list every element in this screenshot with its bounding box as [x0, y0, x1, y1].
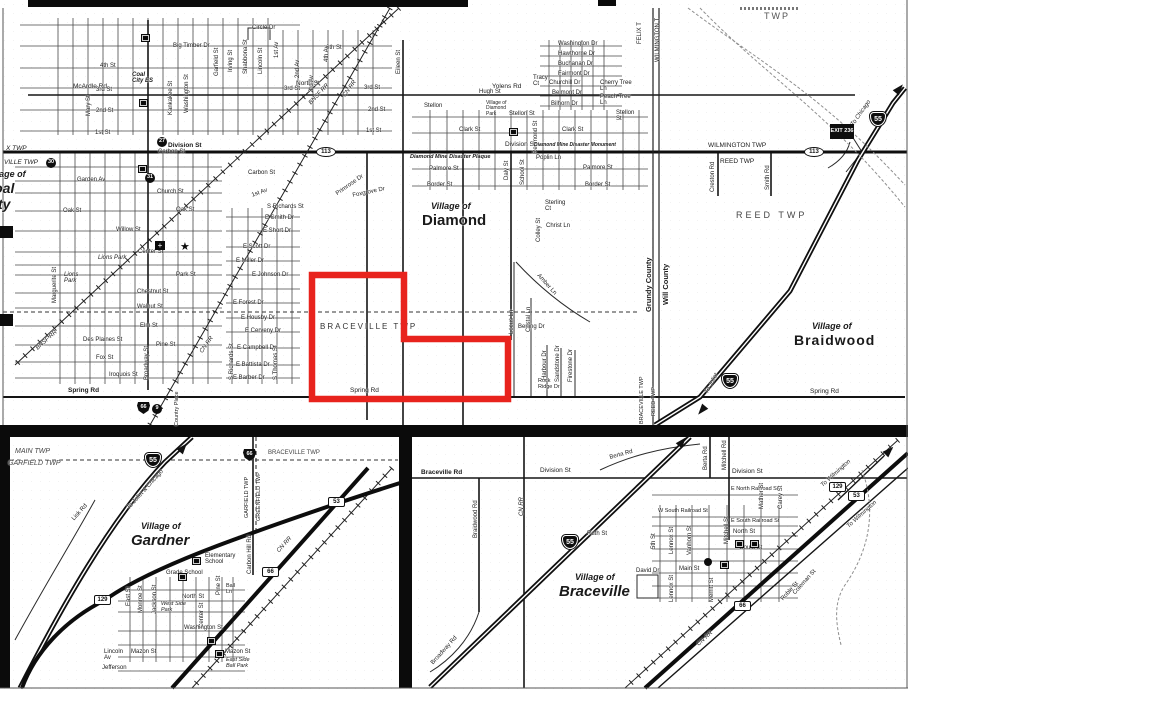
- map-label: McArdle Rd: [73, 84, 107, 91]
- school-icon: [215, 650, 224, 658]
- map-label: City: [0, 197, 10, 212]
- map-label: Poplin Ln: [536, 155, 561, 161]
- map-label: Fairmont Dr: [558, 71, 590, 77]
- map-label: Center St: [199, 603, 205, 628]
- map-label: Lions Park: [98, 255, 126, 261]
- map-label: W South Railroad St: [658, 509, 708, 515]
- village-label-diamond: Village of: [431, 202, 471, 211]
- arrow-north-icon: [883, 444, 896, 457]
- map-label: Braceville: [559, 584, 630, 600]
- map-label: 1st St: [366, 128, 381, 134]
- map-label: Stellon St: [509, 111, 535, 117]
- interstate-55-road: [20, 88, 905, 688]
- map-label: Eileen St: [396, 50, 402, 74]
- map-label: VILLE TWP: [4, 160, 38, 167]
- map-label: To Joliet: [704, 372, 720, 394]
- map-label: Daly St: [504, 161, 510, 180]
- map-label: Division St: [540, 468, 571, 475]
- map-label: E Barber Dr: [233, 375, 265, 381]
- route-marker-27: 27: [157, 137, 167, 147]
- map-label: Elementary School: [205, 553, 239, 566]
- route-113-shield: 113: [316, 147, 336, 157]
- map-label: S Richards St: [267, 204, 304, 210]
- map-label: X TWP: [6, 146, 27, 153]
- map-label: Redmond St: [533, 121, 539, 154]
- map-label: Carbon St: [248, 170, 275, 176]
- map-label: Mather St: [759, 483, 765, 509]
- map-label: Stellon: [424, 103, 442, 109]
- street-grid: [15, 18, 798, 671]
- map-label: Lennox St: [669, 527, 675, 554]
- map-label: Oak St: [176, 207, 194, 213]
- map-label: Village of Diamond Park: [486, 101, 514, 117]
- route-53-shield: 53: [328, 497, 345, 507]
- map-label: Creston Rd: [710, 162, 716, 192]
- route-marker-9: 9: [152, 404, 162, 414]
- map-label: Primrose Dr: [335, 174, 365, 198]
- map-label: Foxgrove Dr: [352, 186, 386, 199]
- school-icon: [178, 573, 187, 581]
- map-label: Big Timber Dr: [173, 43, 210, 49]
- map-label: Garfield St: [214, 48, 220, 76]
- map-label: Spring Rd: [810, 389, 839, 396]
- route-66-road: [22, 453, 908, 688]
- map-label: School St: [520, 159, 526, 185]
- map-label: Shabbona St: [243, 39, 249, 74]
- highlight-overlay-layer: [0, 0, 908, 690]
- map-label: REED TWP: [652, 387, 658, 416]
- map-label: Palmore St: [583, 165, 613, 171]
- map-label: Tracy Ct: [533, 75, 551, 88]
- map-label: 1st St: [95, 130, 110, 136]
- village-label-braidwood: Village of: [812, 322, 852, 331]
- map-label: E South Railroad St: [731, 519, 779, 525]
- map-label: CN RR: [696, 630, 714, 647]
- map-label: Carey St: [778, 486, 784, 509]
- map-label: Churchill Dr: [549, 80, 580, 86]
- interstate-55-shield: 55: [722, 374, 738, 388]
- map-label: GARFIELD TWP: [245, 477, 251, 518]
- map-label: Berta Rd: [703, 446, 709, 470]
- map-label: Church St: [157, 189, 184, 195]
- map-label: Park St: [176, 272, 196, 278]
- map-label: Peach Tree Ln: [600, 94, 632, 107]
- map-label: Lions Park: [64, 272, 86, 285]
- building-icon: [0, 226, 13, 238]
- map-label: WILMINGTON TWP: [708, 143, 766, 150]
- map-label: Coleman St: [792, 569, 818, 597]
- route-129-shield: 129: [94, 595, 111, 605]
- map-label: E Short Dr: [263, 228, 291, 234]
- map-label: Country Place: [175, 391, 181, 426]
- map-label: Yolens Rd: [492, 84, 521, 91]
- village-label-braceville: Village of: [575, 573, 615, 582]
- map-label: Coal City ES: [132, 72, 156, 85]
- map-label: Carbon St: [158, 149, 185, 155]
- historic-66-marker: 66: [137, 402, 150, 414]
- route-129-shield: 129: [829, 482, 846, 492]
- interstate-55-centerline: [20, 88, 905, 688]
- map-label: 3rd St: [284, 86, 300, 92]
- map-label: Kankakee St: [168, 81, 174, 115]
- arrow-north-icon: [177, 441, 190, 455]
- map-label: Washington St: [184, 74, 190, 113]
- map-label: East St: [126, 587, 132, 606]
- map-label: Main St: [679, 566, 699, 572]
- map-label: E Battista Dr: [236, 362, 270, 368]
- map-label: Broadway St: [144, 346, 150, 380]
- school-icon: [192, 557, 201, 565]
- map-label: Division St: [505, 142, 536, 149]
- map-label: Braidwood: [794, 333, 875, 348]
- map-label: To Joliet & Chicago: [126, 469, 165, 511]
- map-label: 2nd St: [368, 107, 385, 113]
- map-label: FELIX T: [637, 22, 643, 44]
- map-label: Monroe St: [138, 585, 144, 613]
- map-label: WILMINGTON T: [655, 18, 661, 62]
- railroad-ticks: [15, 8, 898, 688]
- map-label: Broadway Rd: [430, 635, 459, 666]
- historic-66-marker: 66: [243, 449, 256, 461]
- map-label: 2nd Av: [295, 60, 301, 78]
- map-label: Bilhorn Dr: [551, 101, 578, 107]
- map-label: Buchanan Dr: [558, 61, 593, 67]
- map-label: Division St: [168, 143, 202, 150]
- hospital-icon: [155, 241, 165, 250]
- direction-arrows: [177, 82, 906, 458]
- school-icon: [735, 540, 744, 548]
- map-label: Washington Dr: [558, 41, 597, 47]
- map-label: Harbour Dr: [542, 350, 548, 380]
- map-label: Mitchell St: [724, 516, 730, 544]
- map-label: Sandstone Dr: [555, 345, 561, 382]
- map-label: North St: [296, 81, 320, 88]
- arrow-south-icon: [695, 404, 708, 418]
- map-label: BNSF RR: [308, 83, 330, 106]
- map-label: E Scott Dr: [243, 244, 270, 250]
- map-label: E Cerveny Dr: [245, 328, 281, 334]
- map-label: Rock Ridge Dr: [538, 379, 566, 391]
- map-label: Lincoln St: [258, 48, 264, 74]
- illegible-text: [740, 7, 798, 10]
- map-label: 1st Av: [274, 42, 280, 58]
- map-label: East Side Ball Park: [226, 658, 258, 670]
- village-label-gardner: Village of: [141, 522, 181, 531]
- map-label: Division St: [732, 469, 763, 476]
- map-label: Iroquois St: [109, 372, 138, 378]
- map-label: BRACEVILLE TWP: [268, 450, 320, 456]
- map-label: 6th St: [326, 45, 342, 51]
- map-label: Coal: [0, 181, 14, 196]
- map-label: Center St: [138, 249, 163, 255]
- map-label: Braidwood Rd: [473, 500, 479, 538]
- school-icon: [139, 99, 148, 107]
- map-label: Mitchell Rd: [722, 440, 728, 470]
- map-label: E Johnson Dr: [252, 272, 288, 278]
- map-label: Des Plaines St: [83, 337, 122, 343]
- map-base-layer: [0, 0, 908, 690]
- creek-line: [688, 8, 905, 645]
- map-label: Berling Dr: [518, 324, 545, 330]
- major-roads: [28, 20, 907, 688]
- map-area: McArdle RdCircle DrNorth StYolens RdTWP4…: [0, 0, 908, 690]
- map-label: S Richards St: [229, 343, 235, 380]
- map-label: Marguerite St: [52, 267, 58, 303]
- map-label: 4th St: [100, 63, 116, 69]
- map-label: Mary St: [86, 95, 92, 116]
- map-label: North St: [733, 529, 755, 535]
- map-label: Walnut St: [137, 304, 163, 310]
- map-label: Willow St: [116, 227, 141, 233]
- map-label: Chestnut St: [137, 289, 168, 295]
- map-label: David Dr: [636, 568, 659, 574]
- map-label: TWP: [764, 12, 790, 21]
- map-label: Jackson St: [152, 585, 158, 614]
- map-label: North St: [182, 594, 204, 600]
- exit-236-sign: EXIT 236: [830, 124, 854, 139]
- map-label: Will County: [662, 264, 670, 305]
- map-label: Merritt St: [709, 578, 715, 602]
- map-label: Roble St: [780, 581, 800, 602]
- map-label: E Smith Dr: [265, 215, 294, 221]
- map-label: Border St: [585, 182, 610, 188]
- map-label: Smith Rd: [765, 165, 771, 190]
- star-icon: [180, 242, 190, 253]
- map-label: Diamond Mine Disaster Monument: [534, 143, 616, 148]
- map-label: MAIN TWP: [15, 448, 50, 455]
- map-label: Carbon Hill Rd: [247, 535, 253, 574]
- map-label: West Side Park: [161, 602, 189, 614]
- twp-label-reed: REED TWP: [736, 211, 807, 220]
- map-label: Elm St: [140, 323, 158, 329]
- map-label: 3rd St: [96, 87, 112, 93]
- map-label: 2nd St: [96, 108, 113, 114]
- scanned-map-page: McArdle RdCircle DrNorth StYolens RdTWP4…: [0, 0, 1152, 702]
- map-frame: [0, 0, 908, 688]
- interstate-55-shield: 55: [870, 112, 886, 126]
- map-label: 1st Av: [251, 187, 268, 198]
- map-label: Grade School: [166, 570, 203, 576]
- map-label: Firestone Dr: [568, 349, 574, 382]
- route-marker-31: 31: [145, 173, 155, 183]
- map-label: Garden Av: [77, 177, 105, 183]
- map-label: 4th Av: [324, 45, 330, 62]
- map-label: Colley St: [536, 218, 542, 242]
- map-label: To Wilmington: [846, 500, 878, 530]
- poi-icon: [704, 558, 712, 566]
- map-label: E Housby Dr: [241, 315, 275, 321]
- interstate-55-shield: 55: [562, 535, 578, 549]
- map-label: Lisk Rd: [71, 503, 89, 522]
- map-label: Belmont Dr: [552, 90, 582, 96]
- map-label: Mazon St: [131, 649, 156, 655]
- school-icon: [720, 561, 729, 569]
- route-66-shield: 66: [262, 567, 279, 577]
- map-label: 5th St: [651, 533, 657, 549]
- route-53-shield: 53: [848, 491, 865, 501]
- map-label: Border St: [427, 182, 452, 188]
- route-marker-30: 30: [46, 158, 56, 168]
- map-label: Irving St: [228, 50, 234, 72]
- highlighted-parcel-outline: [312, 275, 508, 399]
- map-label: Ruth St: [587, 531, 607, 537]
- map-label: Gould St: [739, 545, 762, 551]
- map-label: Circle Dr: [252, 25, 275, 31]
- map-label: Oak St: [63, 208, 81, 214]
- map-label: Braceville Rd: [421, 470, 462, 477]
- route-66-shield: 66: [734, 601, 751, 611]
- map-label: Clark St: [562, 127, 583, 133]
- map-label: Gardner: [131, 533, 189, 549]
- map-label: CN RR: [342, 79, 358, 98]
- map-label: Spring Rd: [350, 388, 379, 395]
- arrow-north-icon: [676, 435, 689, 449]
- map-label: 3rd Av: [309, 75, 315, 92]
- map-label: Amber Ln: [535, 273, 557, 297]
- map-label: Hugh St: [479, 89, 501, 95]
- map-label: Sterling Ct: [545, 200, 565, 213]
- map-label: GREENFIELD TWP: [257, 472, 263, 521]
- map-label: E Campbell Dr: [237, 345, 276, 351]
- map-label: REED TWP: [720, 159, 754, 166]
- map-label: Mazon St: [225, 649, 250, 655]
- county-line: [653, 8, 659, 425]
- map-label: Hawthorne Dr: [558, 51, 595, 57]
- map-label: Christ Ln: [546, 223, 570, 229]
- map-label: To Chicago: [850, 99, 872, 127]
- route-113-shield: 113: [804, 147, 824, 157]
- map-label: E Miller Dr: [236, 258, 264, 264]
- map-label: Clark St: [459, 127, 480, 133]
- school-icon: [138, 165, 147, 173]
- map-label: E Forest Dr: [233, 300, 264, 306]
- map-labels-layer: McArdle RdCircle DrNorth StYolens RdTWP4…: [0, 0, 908, 690]
- map-label: CN RR: [276, 536, 293, 554]
- school-icon: [509, 128, 518, 136]
- map-label: Vanhorn St: [687, 525, 693, 555]
- twp-label-braceville: BRACEVILLE TWP: [320, 323, 417, 331]
- map-label: CN RR: [519, 497, 525, 516]
- arrow-north-icon: [893, 82, 906, 96]
- map-label: Grundy County: [645, 257, 653, 312]
- school-icon: [207, 637, 216, 645]
- map-label: Cherry Tree Ln: [600, 80, 632, 93]
- minor-roads: [15, 28, 862, 672]
- school-icon: [141, 34, 150, 42]
- map-label: CN RR: [199, 335, 215, 354]
- map-label: Diamond: [422, 213, 486, 229]
- map-label: Washington St: [184, 625, 223, 631]
- map-label: Stellon St: [616, 110, 634, 123]
- map-label: S Thomas St: [273, 345, 279, 380]
- map-label: 3rd St: [364, 85, 380, 91]
- map-label: To Wilmington: [820, 459, 852, 489]
- map-label: GARFIELD TWP: [8, 460, 61, 467]
- map-label: Spring Rd: [68, 388, 99, 395]
- map-label: Cristal Ln: [526, 307, 532, 332]
- school-icon: [750, 540, 759, 548]
- map-label: E North Railroad St: [731, 487, 778, 493]
- map-label: Palmore St: [429, 166, 459, 172]
- map-label: Jefferson: [102, 665, 127, 671]
- building-icon: [0, 314, 13, 326]
- map-label: Pine St: [216, 576, 222, 595]
- map-label: Fox St: [96, 355, 113, 361]
- map-label: Diamond Mine Disaster Plaque: [410, 155, 490, 161]
- map-label: Berta Rd: [609, 449, 634, 461]
- interstate-55-shield: 55: [145, 453, 161, 467]
- map-label: BNSF RR: [35, 329, 59, 351]
- map-label: Lincoln Av: [104, 649, 126, 662]
- map-label: Ball Ln: [226, 584, 240, 596]
- map-label: Pine St: [156, 342, 175, 348]
- panel-separator-bars: [0, 0, 908, 688]
- map-label: BRACEVILLE TWP: [640, 376, 646, 424]
- map-label: Lennox St: [669, 575, 675, 602]
- map-markers-layer: 1131135555EXIT 2362730316695566129536655…: [0, 0, 908, 690]
- railroad-line: [15, 8, 898, 688]
- village-label-coal-city: Village of: [0, 170, 26, 179]
- township-dashed-line: [3, 312, 640, 530]
- route-53-road: [658, 456, 908, 688]
- map-label: Locus Ln: [509, 310, 515, 334]
